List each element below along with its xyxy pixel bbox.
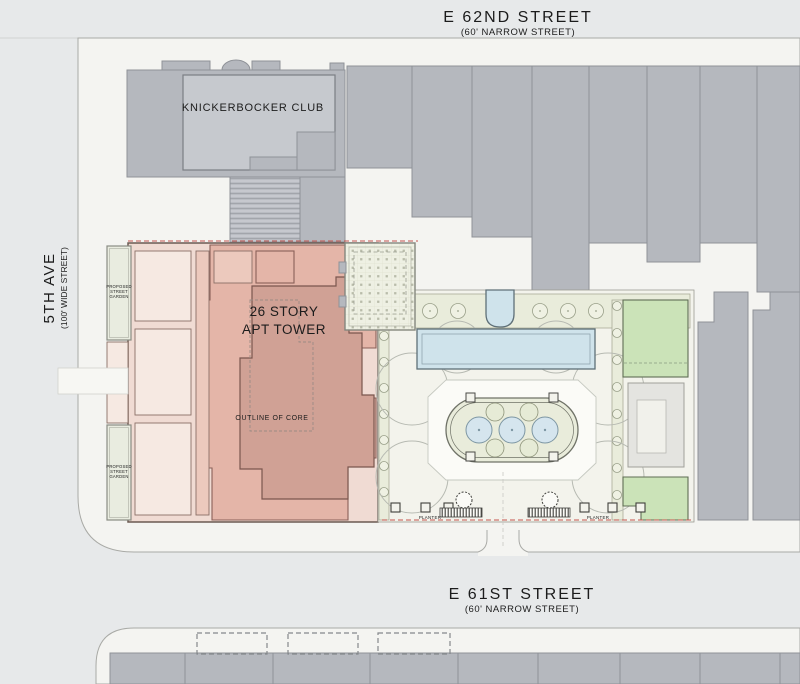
reflecting-pool <box>417 329 595 369</box>
svg-text:GARDEN: GARDEN <box>109 294 128 299</box>
tower-label-line2: APT TOWER <box>242 322 326 337</box>
planter-label-right: PLANTER <box>587 515 609 520</box>
fifth-ave-sublabel: (100' WIDE STREET) <box>59 247 69 329</box>
svg-text:GARDEN: GARDEN <box>109 474 128 479</box>
midblock-driveway <box>58 368 128 394</box>
proposed-street-garden-south: PROPOSED STREET GARDEN <box>106 425 131 520</box>
site-plan-drawing: KNICKERBOCKER CLUB 26 STORY APT TOWER OU… <box>0 0 800 684</box>
e62nd-street-label: E 62ND STREET <box>443 9 593 26</box>
central-parterre <box>446 393 578 462</box>
east-hedge <box>612 300 623 520</box>
fountain-basin <box>486 290 514 327</box>
pergola-trellis <box>339 243 415 330</box>
e61st-street-label: E 61ST STREET <box>449 586 596 603</box>
tower-label-line1: 26 STORY <box>250 304 319 319</box>
core-outline-label: OUTLINE OF CORE <box>235 415 308 422</box>
e61st-street-sublabel: (60' NARROW STREET) <box>465 604 579 615</box>
entry-stairs <box>230 177 300 242</box>
knickerbocker-club-label: KNICKERBOCKER CLUB <box>182 102 324 114</box>
east-terrace <box>628 383 684 467</box>
fifth-ave-label: 5TH AVE <box>41 252 58 323</box>
site-plan: KNICKERBOCKER CLUB 26 STORY APT TOWER OU… <box>0 0 800 684</box>
planter-label-left: PLANTER <box>419 515 441 520</box>
proposed-street-garden-north: PROPOSED STREET GARDEN <box>106 246 131 340</box>
e62nd-street-sublabel: (60' NARROW STREET) <box>461 27 575 38</box>
